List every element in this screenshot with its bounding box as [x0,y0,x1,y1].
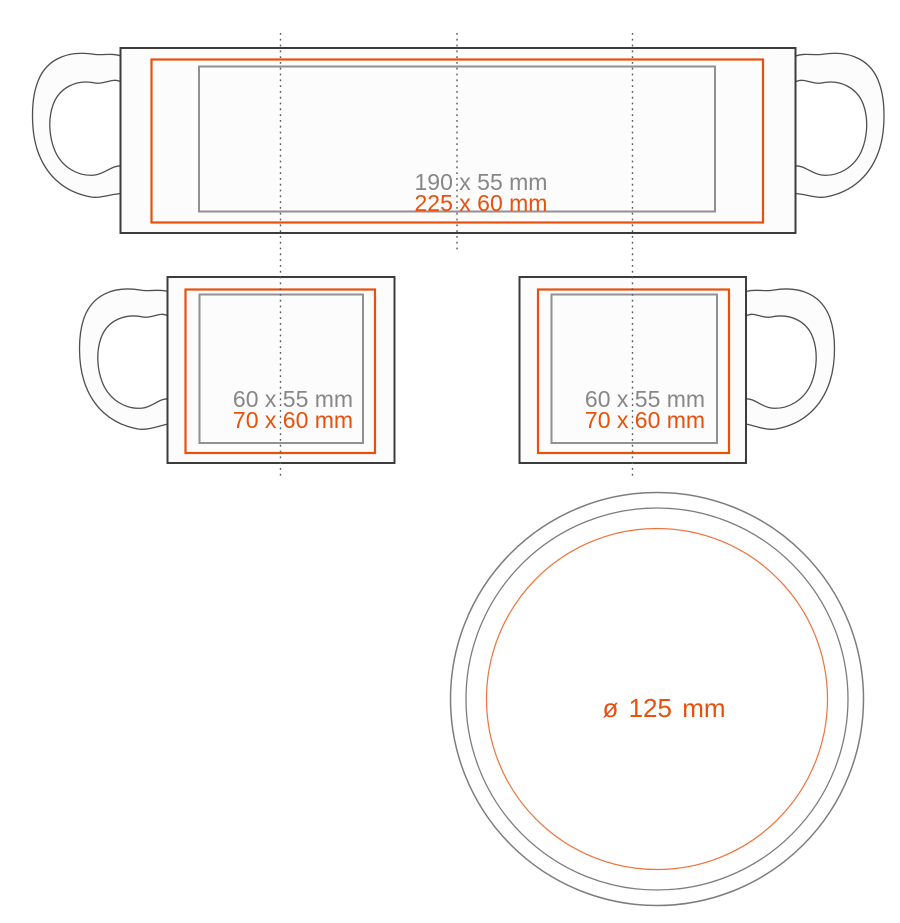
side-view-mug-right [520,277,835,463]
left-mug-handle [80,289,169,429]
wrap-mug-right-handle [796,53,885,197]
left-mug-max-size-label: 70 x 60 mm [168,410,418,431]
right-mug-max-size-label: 70 x 60 mm [520,410,770,431]
left-mug-size-labels: 60 x 55 mm 70 x 60 mm [168,389,418,431]
wrap-mug-left-handle [33,53,122,197]
side-view-mug-left [80,277,395,463]
mug-print-template-diagram: 190 x 55 mm 225 x 60 mm 60 x 55 mm 70 x … [0,0,900,923]
wrap-max-size-label: 225 x 60 mm [356,193,606,214]
wrap-size-labels: 190 x 55 mm 225 x 60 mm [356,172,606,214]
diagram-canvas [0,0,900,923]
bottom-diameter-label: ø 125 mm [539,695,789,721]
right-mug-size-labels: 60 x 55 mm 70 x 60 mm [520,389,770,431]
